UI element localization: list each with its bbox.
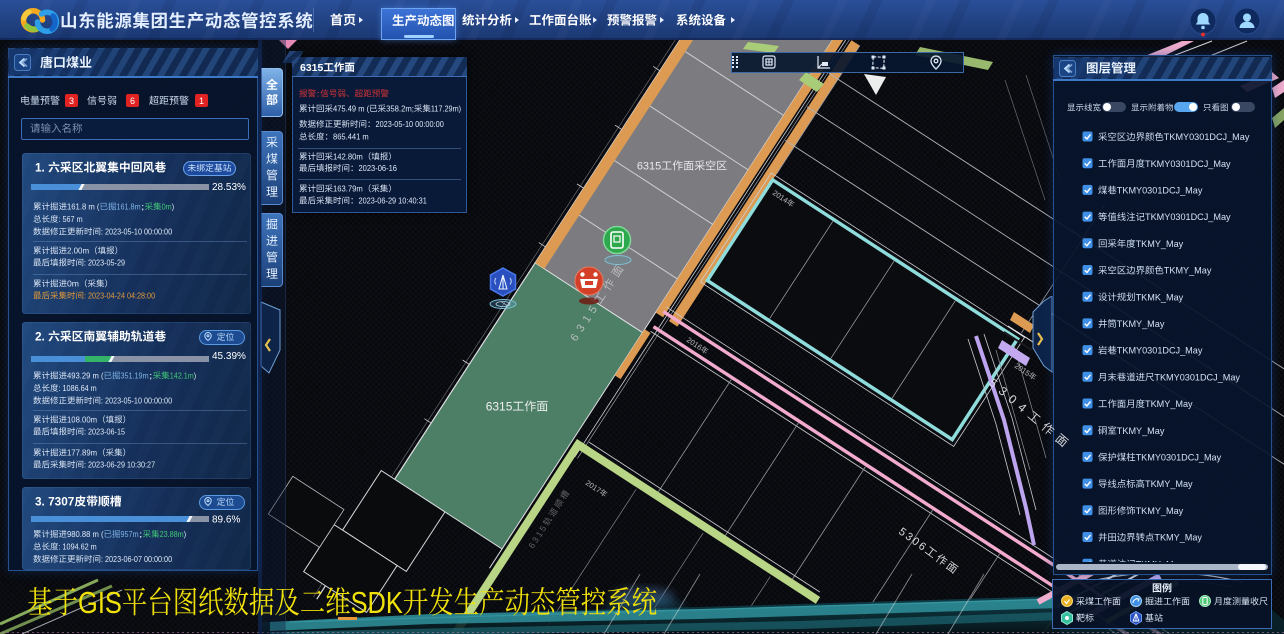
- svg-text:2.: 2.: [35, 330, 45, 344]
- svg-text:161.8 m (: 161.8 m (: [67, 202, 100, 212]
- svg-text:23.88m: 23.88m: [160, 529, 184, 539]
- svg-text:6: 6: [130, 96, 135, 106]
- svg-text:SDK: SDK: [351, 586, 403, 621]
- svg-text:117.29m): 117.29m): [431, 104, 461, 114]
- svg-text:2.00m: 2.00m: [67, 246, 89, 256]
- svg-text:TKMY0301DCJ_May: TKMY0301DCJ_May: [1117, 185, 1203, 196]
- svg-text::: :: [316, 89, 320, 99]
- svg-text:TKMY_May: TKMY_May: [1164, 265, 1212, 276]
- svg-text:: 2023-06-07 00:00:00: : 2023-06-07 00:00:00: [101, 554, 172, 564]
- svg-text:5306: 5306: [896, 526, 929, 555]
- svg-text:TKMY0301DCJ_May: TKMY0301DCJ_May: [1145, 211, 1231, 222]
- svg-text:: 567 m: : 567 m: [59, 214, 83, 224]
- svg-text:TKMY0301DCJ_May: TKMY0301DCJ_May: [1154, 371, 1240, 382]
- svg-text:): ): [184, 529, 187, 539]
- svg-text:: 2023-05-10 00:00:00: : 2023-05-10 00:00:00: [101, 227, 172, 237]
- svg-text:161.8m: 161.8m: [117, 202, 141, 212]
- svg-text:TKMY_May: TKMY_May: [1117, 425, 1165, 436]
- svg-text:142.80m: 142.80m: [333, 152, 363, 162]
- svg-text:2023-06-29 10:40:31: 2023-06-29 10:40:31: [359, 196, 428, 206]
- svg-text:TKMY_May: TKMY_May: [1136, 505, 1184, 516]
- svg-text:TKMY0301DCJ_May: TKMY0301DCJ_May: [1117, 345, 1203, 356]
- svg-text:493.29 m (: 493.29 m (: [67, 371, 104, 381]
- svg-text:45.39%: 45.39%: [212, 351, 246, 362]
- svg-text:): ): [194, 371, 197, 381]
- svg-text:163.79m: 163.79m: [333, 184, 363, 194]
- svg-text:: 2023-06-29 10:30:27: : 2023-06-29 10:30:27: [84, 460, 155, 470]
- svg-text:6315: 6315: [526, 522, 549, 550]
- svg-text:GIS: GIS: [78, 586, 122, 621]
- svg-text:5304: 5304: [986, 376, 1034, 419]
- svg-text:: 1094.62 m: : 1094.62 m: [59, 542, 97, 552]
- svg-text:0m: 0m: [162, 202, 172, 212]
- svg-text:6315: 6315: [300, 62, 324, 74]
- svg-text:TKMK_May: TKMK_May: [1136, 291, 1184, 302]
- svg-text:): ): [172, 202, 175, 212]
- svg-text:TKMY_May: TKMY_May: [1136, 238, 1184, 249]
- svg-text:0m: 0m: [67, 279, 79, 289]
- svg-text:980.88 m (: 980.88 m (: [67, 529, 104, 539]
- svg-text:TKMY_May: TKMY_May: [1117, 318, 1165, 329]
- svg-text:TKMY0301DCJ_May: TKMY0301DCJ_May: [1164, 131, 1250, 142]
- svg-text:;: ;: [141, 202, 145, 212]
- svg-text:6315: 6315: [486, 400, 513, 414]
- svg-text:TKMY0301DCJ_May: TKMY0301DCJ_May: [1145, 158, 1231, 169]
- svg-text:: 2023-05-10 00:00:00: : 2023-05-10 00:00:00: [101, 396, 172, 406]
- svg-text:: 2023-06-15: : 2023-06-15: [84, 427, 125, 437]
- svg-text:2023-06-16: 2023-06-16: [359, 163, 398, 173]
- svg-text:TKMY_May: TKMY_May: [1145, 398, 1193, 409]
- svg-text:TKMY_May: TKMY_May: [1145, 478, 1193, 489]
- svg-text:2023-05-10 00:00:00: 2023-05-10 00:00:00: [376, 119, 445, 129]
- svg-text:;: ;: [149, 371, 153, 381]
- svg-text:TKMY0301DCJ_May: TKMY0301DCJ_May: [1136, 452, 1222, 463]
- svg-text:: 1086.64 m: : 1086.64 m: [59, 383, 97, 393]
- svg-text:1: 1: [199, 96, 204, 106]
- svg-text:: 2023-04-24 04:28:00: : 2023-04-24 04:28:00: [84, 291, 155, 301]
- svg-text:358.2m;: 358.2m;: [386, 104, 414, 114]
- svg-text:TKMY_May: TKMY_May: [1154, 532, 1202, 543]
- svg-text:475.49 m (: 475.49 m (: [333, 104, 369, 114]
- svg-text:1.: 1.: [35, 161, 45, 175]
- svg-text:177.89m: 177.89m: [67, 448, 97, 458]
- svg-text:6315: 6315: [637, 161, 661, 173]
- svg-text:3: 3: [69, 96, 74, 106]
- svg-text:351.19m: 351.19m: [121, 371, 149, 381]
- svg-text:89.6%: 89.6%: [212, 515, 240, 526]
- svg-text:28.53%: 28.53%: [212, 182, 246, 193]
- svg-text:: 2023-05-29: : 2023-05-29: [84, 258, 125, 268]
- svg-text:;: ;: [139, 529, 143, 539]
- svg-text:3. 7307: 3. 7307: [35, 495, 75, 509]
- svg-text:142.1m: 142.1m: [170, 371, 194, 381]
- svg-text:957m: 957m: [121, 529, 139, 539]
- svg-text:6315: 6315: [568, 300, 602, 344]
- svg-text:108.00m: 108.00m: [67, 415, 97, 425]
- svg-text:865.441 m: 865.441 m: [333, 132, 369, 142]
